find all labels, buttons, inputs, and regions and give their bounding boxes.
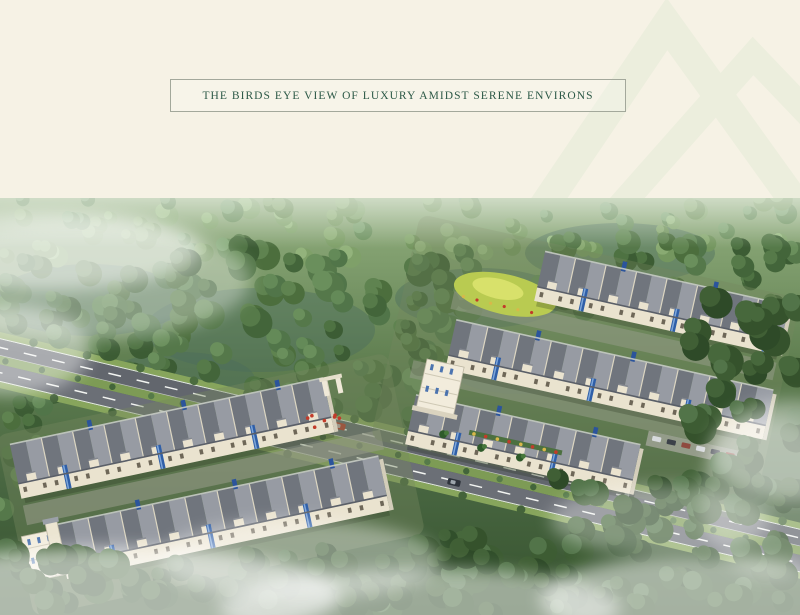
aerial-render-image (0, 198, 800, 615)
aerial-scene (0, 198, 800, 615)
section-title-box: THE BIRDS EYE VIEW OF LUXURY AMIDST SERE… (170, 79, 626, 112)
page: THE BIRDS EYE VIEW OF LUXURY AMIDST SERE… (0, 0, 800, 615)
section-title: THE BIRDS EYE VIEW OF LUXURY AMIDST SERE… (202, 90, 593, 102)
header-band: THE BIRDS EYE VIEW OF LUXURY AMIDST SERE… (0, 0, 800, 198)
